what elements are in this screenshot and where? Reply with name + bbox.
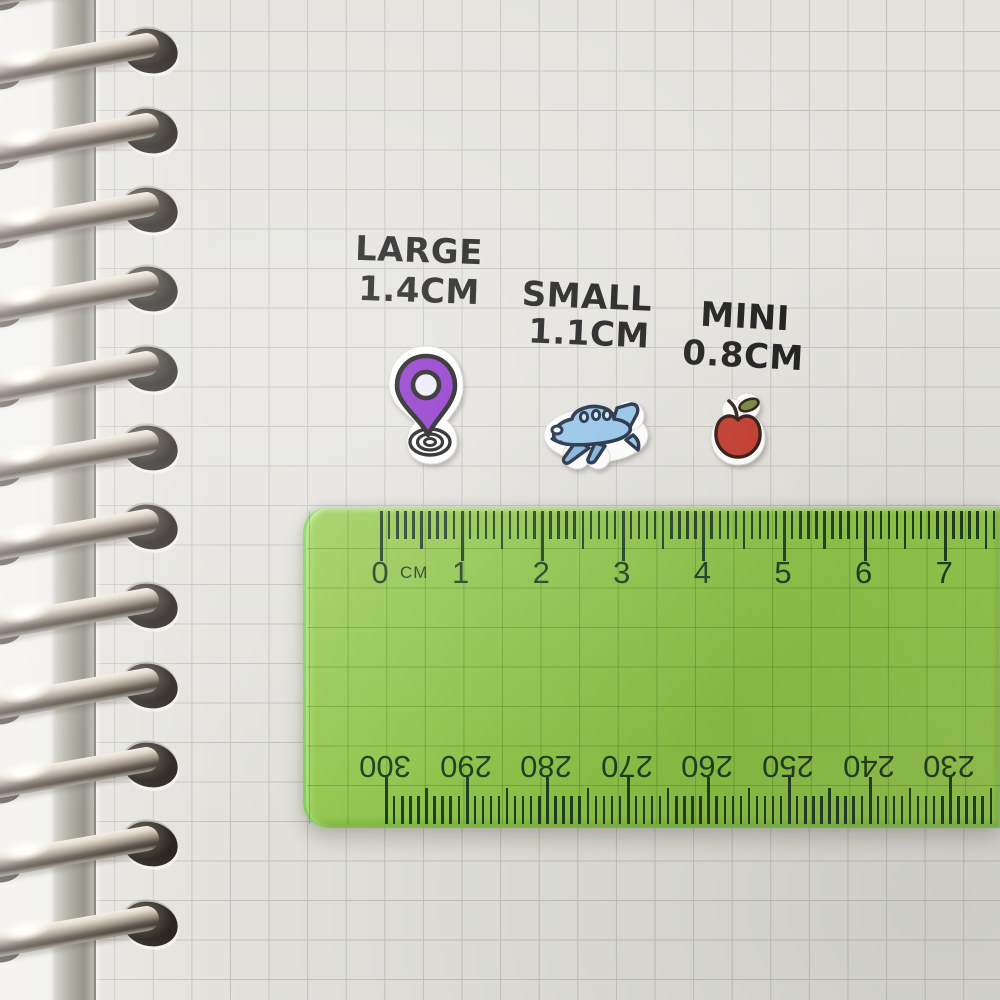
ruler-tick	[941, 796, 943, 824]
ruler-tick	[651, 796, 653, 824]
ruler-tick	[533, 511, 535, 539]
ruler-tick	[885, 796, 887, 824]
ruler-tick	[807, 511, 809, 539]
ruler-tick	[385, 777, 388, 824]
ruler-tick	[461, 511, 464, 561]
airplane-sticker	[541, 399, 653, 471]
ruler-tick	[869, 777, 872, 824]
ruler-tick	[993, 511, 995, 539]
ruler-tick	[791, 511, 793, 539]
ruler-tick	[702, 511, 705, 561]
ruler-mm-number: 280	[520, 748, 572, 784]
ruler-tick	[493, 511, 495, 539]
ruler-tick	[949, 777, 952, 824]
ruler-tick	[836, 796, 838, 824]
ruler-tick	[981, 796, 983, 824]
ruler-tick	[815, 511, 817, 539]
ruler-tick	[525, 511, 527, 539]
ruler-mm-number: 240	[843, 748, 895, 784]
ruler-tick	[909, 788, 911, 824]
ruler-tick	[743, 511, 745, 549]
ruler-tick	[412, 511, 414, 539]
ruler-tick	[780, 796, 782, 824]
ruler-cm-number: 4	[694, 555, 711, 591]
ruler-tick	[396, 511, 398, 539]
ruler-tick	[847, 511, 849, 539]
ruler-tick	[546, 777, 549, 824]
ruler-tick	[485, 511, 487, 539]
apple-sticker	[707, 391, 771, 467]
ruler-tick	[458, 796, 460, 824]
ruler-tick	[393, 796, 395, 824]
spiral-ring	[0, 0, 190, 22]
spiral-ring	[0, 339, 190, 419]
ruler-tick	[973, 796, 975, 824]
ruler-cm-number: 1	[452, 555, 469, 591]
ruler-grid-reflection	[307, 511, 1000, 824]
ruler-tick	[828, 788, 830, 824]
ruler-tick	[990, 788, 992, 824]
ruler-tick	[904, 511, 906, 549]
ruler-tick	[710, 511, 712, 539]
ruler-tick	[643, 796, 645, 824]
ruler-cm-number: 7	[936, 555, 953, 591]
ruler: 01234567300290280270260250240230 CM	[303, 507, 1000, 828]
ruler-tick	[622, 511, 625, 561]
label-large-size: 1.4CM	[358, 272, 481, 310]
ruler-tick	[686, 511, 688, 539]
ruler-tick	[732, 796, 734, 824]
ruler-tick	[630, 511, 632, 539]
ruler-tick	[893, 796, 895, 824]
ruler-tick	[925, 796, 927, 824]
ruler-tick	[861, 796, 863, 824]
ruler-tick	[965, 796, 967, 824]
ruler-tick	[896, 511, 898, 539]
ruler-tick	[707, 777, 710, 824]
ruler-tick	[611, 796, 613, 824]
ruler-tick	[917, 796, 919, 824]
ruler-tick	[646, 511, 648, 539]
ruler-tick	[522, 796, 524, 824]
spiral-ring	[0, 497, 190, 577]
ruler-cm-number: 6	[855, 555, 872, 591]
spiral-ring	[0, 656, 190, 736]
ruler-tick	[501, 511, 503, 549]
ruler-tick	[823, 511, 825, 549]
ruler-tick	[436, 511, 438, 539]
ruler-tick	[466, 777, 469, 824]
ruler-tick	[482, 796, 484, 824]
ruler-tick	[469, 511, 471, 539]
ruler-tick	[420, 511, 422, 549]
label-small-size: 1.1CM	[528, 314, 651, 353]
ruler-cm-number: 3	[613, 555, 630, 591]
ruler-cm-number: 2	[533, 555, 550, 591]
ruler-tick	[549, 511, 551, 539]
ruler-tick	[517, 511, 519, 539]
ruler-tick	[667, 788, 669, 824]
ruler-tick	[976, 511, 978, 539]
ruler-tick	[428, 511, 430, 539]
ruler-tick	[872, 511, 874, 539]
spiral-ring	[0, 418, 190, 498]
ruler-tick	[433, 796, 435, 824]
ruler-tick	[804, 796, 806, 824]
ruler-tick	[724, 796, 726, 824]
ruler-tick	[901, 796, 903, 824]
ruler-unit-label: CM	[400, 563, 428, 583]
ruler-tick	[694, 511, 696, 539]
ruler-tick	[380, 511, 383, 561]
ruler-tick	[404, 511, 406, 539]
ruler-mm-number: 270	[601, 748, 653, 784]
ruler-tick	[751, 511, 753, 539]
ruler-tick	[619, 796, 621, 824]
ruler-mm-number: 290	[440, 748, 492, 784]
ruler-tick	[638, 511, 640, 539]
ruler-tick	[764, 796, 766, 824]
ruler-tick	[603, 796, 605, 824]
ruler-tick	[952, 511, 954, 539]
ruler-tick	[388, 511, 390, 539]
ruler-tick	[417, 796, 419, 824]
ruler-tick	[444, 511, 446, 539]
spiral-ring	[0, 894, 190, 974]
spiral-ring	[0, 576, 190, 656]
ruler-mm-number: 250	[762, 748, 814, 784]
ruler-tick	[727, 511, 729, 539]
ruler-tick	[957, 796, 959, 824]
ruler-tick	[936, 511, 938, 539]
label-mini-size: 0.8CM	[681, 336, 804, 376]
ruler-tick	[441, 796, 443, 824]
ruler-tick	[960, 511, 962, 539]
ruler-tick	[844, 796, 846, 824]
ruler-tick	[514, 796, 516, 824]
ruler-tick	[880, 511, 882, 539]
ruler-tick	[635, 796, 637, 824]
label-small-name: SMALL	[521, 277, 653, 317]
ruler-tick	[570, 796, 572, 824]
ruler-tick	[509, 511, 511, 539]
ruler-tick	[985, 511, 987, 549]
ruler-tick	[678, 511, 680, 539]
ruler-cm-number: 5	[774, 555, 791, 591]
ruler-tick	[799, 511, 801, 539]
ruler-tick	[933, 796, 935, 824]
ruler-tick	[506, 788, 508, 824]
ruler-tick	[759, 511, 761, 539]
ruler-tick	[888, 511, 890, 539]
ruler-tick	[590, 511, 592, 539]
ruler-tick	[541, 511, 544, 561]
ruler-tick	[735, 511, 737, 539]
ruler-tick	[920, 511, 922, 539]
ruler-tick	[912, 511, 914, 539]
ruler-tick	[662, 511, 664, 549]
ruler-tick	[578, 796, 580, 824]
spiral-ring	[0, 180, 190, 260]
ruler-tick	[573, 511, 575, 539]
ruler-tick	[756, 796, 758, 824]
ruler-tick	[554, 796, 556, 824]
ruler-tick	[788, 777, 791, 824]
ruler-tick	[675, 796, 677, 824]
ruler-tick	[477, 511, 479, 539]
ruler-tick	[928, 511, 930, 539]
ruler-tick	[659, 796, 661, 824]
ruler-tick	[562, 796, 564, 824]
ruler-tick	[453, 511, 455, 539]
spiral-ring	[0, 814, 190, 894]
ruler-tick	[715, 796, 717, 824]
ruler-tick	[740, 796, 742, 824]
ruler-tick	[864, 511, 867, 561]
ruler-tick	[582, 511, 584, 549]
ruler-tick	[772, 796, 774, 824]
ruler-tick	[557, 511, 559, 539]
ruler-tick	[968, 511, 970, 539]
spiral-ring	[0, 101, 190, 181]
ruler-tick	[944, 511, 947, 561]
ruler-tick	[775, 511, 777, 539]
spiral-ring	[0, 259, 190, 339]
ruler-tick	[530, 796, 532, 824]
ruler-tick	[820, 796, 822, 824]
ruler-tick	[852, 796, 854, 824]
ruler-tick	[796, 796, 798, 824]
ruler-tick	[627, 777, 630, 824]
ruler-tick	[565, 511, 567, 539]
ruler-tick	[839, 511, 841, 539]
ruler-tick	[691, 796, 693, 824]
ruler-tick	[877, 796, 879, 824]
spiral-ring	[0, 735, 190, 815]
ruler-tick	[409, 796, 411, 824]
ruler-tick	[683, 796, 685, 824]
spiral-ring	[0, 21, 190, 101]
ruler-tick	[474, 796, 476, 824]
ruler-tick	[490, 796, 492, 824]
ruler-tick	[856, 511, 858, 539]
ruler-cm-number: 0	[371, 555, 388, 591]
ruler-tick	[767, 511, 769, 539]
ruler-tick	[670, 511, 672, 539]
notebook-photo: LARGE 1.4CM SMALL 1.1CM MINI 0.8CM	[0, 0, 1000, 1000]
ruler-tick	[538, 796, 540, 824]
ruler-tick	[699, 796, 701, 824]
ruler-tick	[606, 511, 608, 539]
label-large-name: LARGE	[355, 232, 484, 270]
ruler-tick	[719, 511, 721, 539]
ruler-tick	[401, 796, 403, 824]
ruler-tick	[598, 511, 600, 539]
ruler-tick	[449, 796, 451, 824]
label-mini-name: MINI	[699, 298, 790, 337]
ruler-mm-number: 300	[359, 748, 411, 784]
location-pin-sticker	[382, 344, 470, 466]
ruler-tick	[587, 788, 589, 824]
ruler-tick	[425, 788, 427, 824]
ruler-tick	[595, 796, 597, 824]
ruler-tick	[748, 788, 750, 824]
ruler-tick	[498, 796, 500, 824]
ruler-tick	[831, 511, 833, 539]
ruler-tick	[654, 511, 656, 539]
ruler-tick	[783, 511, 786, 561]
ruler-tick	[614, 511, 616, 539]
ruler-tick	[812, 796, 814, 824]
ruler-mm-number: 260	[682, 748, 734, 784]
ring-wire	[0, 0, 161, 7]
ruler-mm-number: 230	[923, 748, 975, 784]
